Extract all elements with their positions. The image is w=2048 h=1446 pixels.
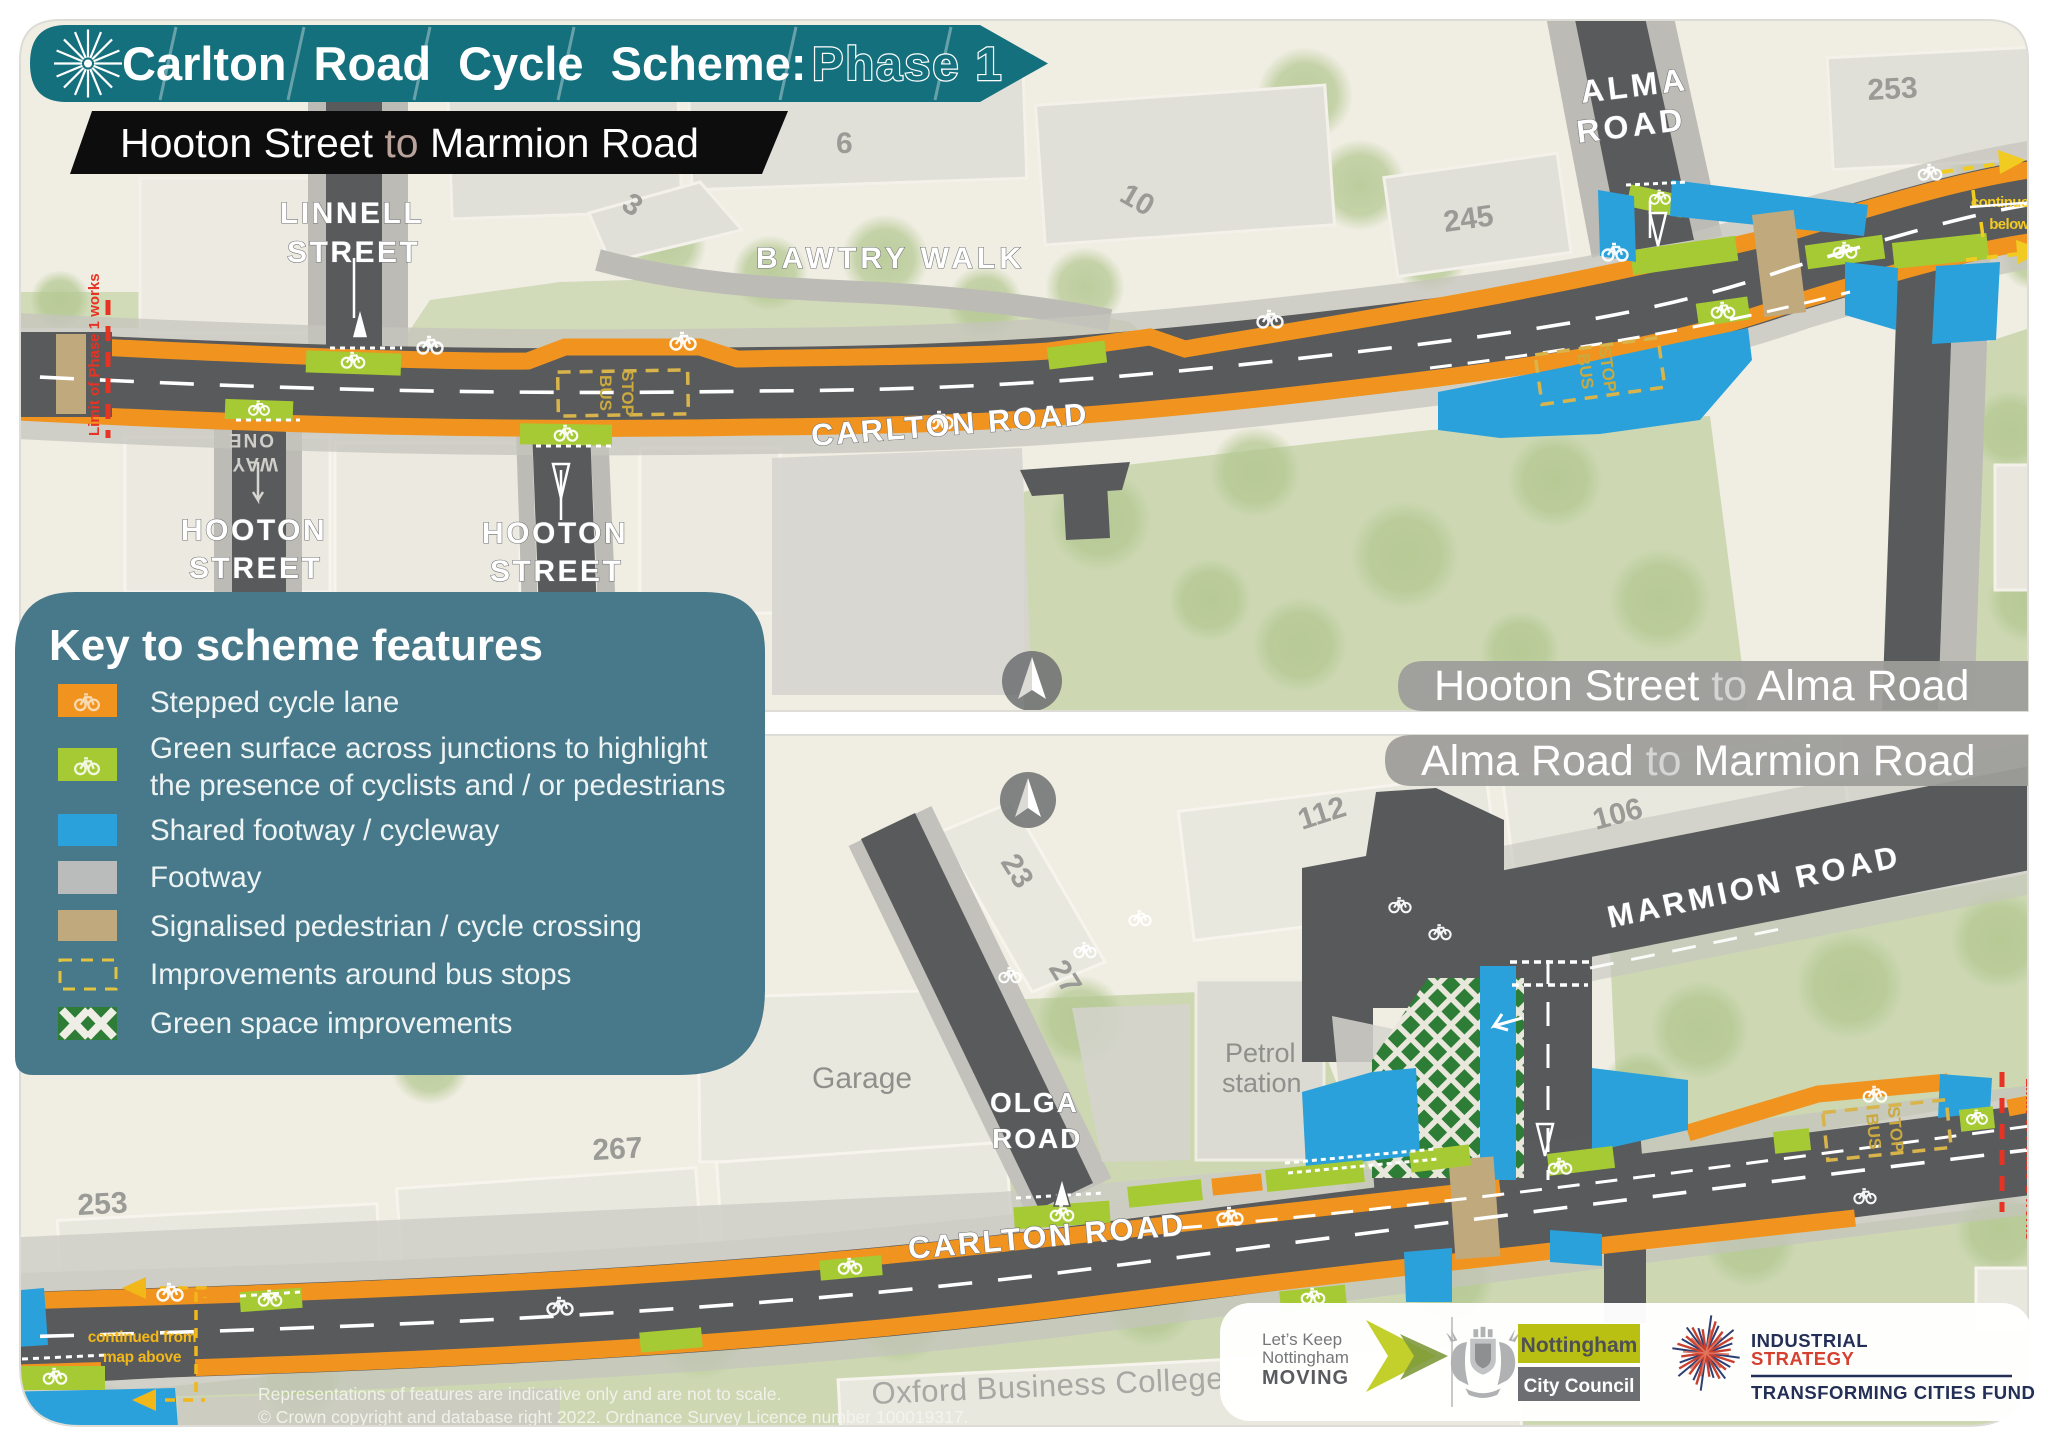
svg-text:Hooton Street to Marmion Road: Hooton Street to Marmion Road <box>120 120 699 166</box>
svg-text:Carlton Road Cycle Scheme:: Carlton Road Cycle Scheme: <box>122 37 807 90</box>
svg-text:Green space improvements: Green space improvements <box>150 1007 512 1040</box>
svg-text:Improvements around bus stops: Improvements around bus stops <box>150 958 571 991</box>
svg-text:ROAD: ROAD <box>992 1123 1082 1154</box>
svg-text:245: 245 <box>1441 199 1495 239</box>
svg-text:Petrol: Petrol <box>1225 1038 1296 1068</box>
svg-text:LINNELL: LINNELL <box>280 197 424 230</box>
svg-text:253: 253 <box>1867 71 1919 107</box>
svg-text:Stepped cycle lane: Stepped cycle lane <box>150 686 399 719</box>
svg-text:HOOTON: HOOTON <box>181 514 327 547</box>
svg-text:253: 253 <box>77 1186 129 1222</box>
svg-text:Footway: Footway <box>150 861 262 894</box>
svg-text:Limit of Phase 1 works: Limit of Phase 1 works <box>2022 1078 2039 1241</box>
svg-text:STOP: STOP <box>618 370 637 416</box>
svg-text:the presence of cyclists and /: the presence of cyclists and / or pedest… <box>150 769 726 802</box>
svg-text:STREET: STREET <box>189 552 322 585</box>
svg-text:City Council: City Council <box>1524 1376 1635 1397</box>
svg-text:Nottingham: Nottingham <box>1262 1348 1349 1367</box>
svg-text:Limit of Phase 1 works: Limit of Phase 1 works <box>86 273 103 436</box>
svg-text:STREET: STREET <box>490 555 623 588</box>
svg-text:TRANSFORMING CITIES FUND: TRANSFORMING CITIES FUND <box>1751 1382 2035 1403</box>
svg-text:BUS: BUS <box>596 375 615 411</box>
svg-text:Signalised pedestrian / cycle: Signalised pedestrian / cycle crossing <box>150 910 642 943</box>
svg-text:Key to scheme features: Key to scheme features <box>49 621 543 670</box>
svg-text:267: 267 <box>592 1131 644 1167</box>
svg-text:STRATEGY: STRATEGY <box>1751 1348 1855 1369</box>
svg-text:ONE: ONE <box>227 429 274 450</box>
svg-text:BUS: BUS <box>1862 1113 1885 1151</box>
svg-text:OLGA: OLGA <box>990 1087 1079 1118</box>
svg-text:below: below <box>1989 216 2029 233</box>
svg-text:Nottingham: Nottingham <box>1521 1334 1638 1357</box>
svg-text:Shared footway / cycleway: Shared footway / cycleway <box>150 814 499 847</box>
svg-text:station: station <box>1222 1068 1302 1098</box>
svg-text:Representations of features ar: Representations of features are indicati… <box>258 1384 781 1404</box>
svg-text:Alma Road to Marmion Road: Alma Road to Marmion Road <box>1421 737 1976 785</box>
svg-text:MOVING: MOVING <box>1262 1367 1349 1389</box>
svg-text:© Crown copyright and database: © Crown copyright and database right 202… <box>258 1407 968 1427</box>
svg-text:HOOTON: HOOTON <box>482 517 628 550</box>
svg-text:map above: map above <box>103 1349 182 1366</box>
svg-text:continued from: continued from <box>88 1329 197 1346</box>
svg-text:Garage: Garage <box>812 1062 912 1095</box>
svg-text:STREET: STREET <box>287 236 420 269</box>
svg-text:6: 6 <box>836 127 853 160</box>
svg-text:Hooton Street to Alma Road: Hooton Street to Alma Road <box>1434 662 1969 710</box>
svg-text:Let’s Keep: Let’s Keep <box>1262 1330 1342 1349</box>
svg-text:Green surface across junctions: Green surface across junctions to highli… <box>150 732 708 765</box>
svg-text:BAWTRY WALK: BAWTRY WALK <box>756 242 1025 275</box>
svg-text:Phase 1: Phase 1 <box>812 37 1004 90</box>
svg-text:WAY: WAY <box>230 453 278 474</box>
